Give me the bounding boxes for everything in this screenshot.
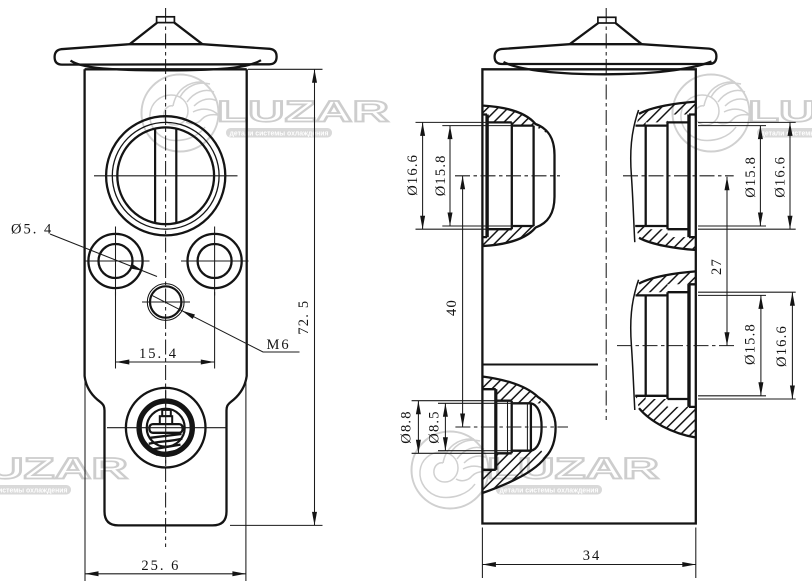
svg-text:M6: M6 [267,337,291,353]
svg-text:Ø15.8: Ø15.8 [433,154,449,196]
svg-text:Ø8.8: Ø8.8 [399,410,415,443]
svg-text:15. 4: 15. 4 [139,346,178,362]
svg-text:Ø15.8: Ø15.8 [743,323,759,365]
svg-text:Ø8.5: Ø8.5 [426,410,442,443]
svg-text:Ø16.6: Ø16.6 [405,154,421,196]
svg-text:27: 27 [709,258,725,275]
svg-text:Ø5. 4: Ø5. 4 [11,222,53,238]
svg-text:72. 5: 72. 5 [296,300,312,335]
svg-text:Ø16.6: Ø16.6 [773,156,789,198]
svg-text:34: 34 [583,548,602,564]
svg-text:Ø16.6: Ø16.6 [774,325,790,367]
svg-text:40: 40 [444,299,460,316]
svg-text:Ø15.8: Ø15.8 [743,156,759,198]
svg-text:25. 6: 25. 6 [141,558,180,574]
